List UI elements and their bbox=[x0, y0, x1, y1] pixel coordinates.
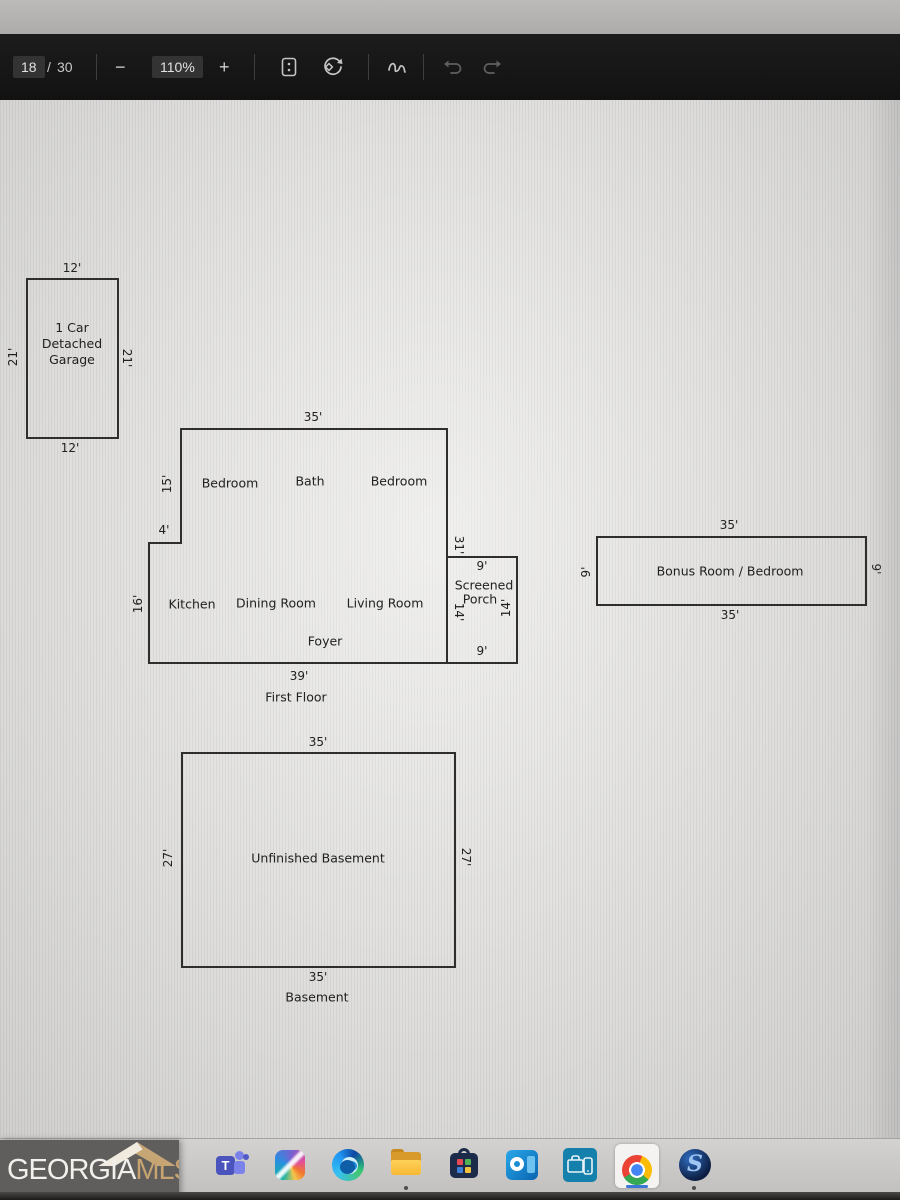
toolbar-divider bbox=[423, 54, 424, 80]
file-explorer-running-dot bbox=[404, 1186, 408, 1190]
draw-icon[interactable] bbox=[387, 58, 407, 76]
first-floor-dim-top: 35' bbox=[304, 410, 323, 424]
zoom-level-input[interactable]: 110% bbox=[152, 56, 203, 78]
screen-bottom-edge bbox=[0, 1192, 900, 1200]
fit-to-page-icon[interactable] bbox=[281, 57, 297, 77]
basement-dim-right: 27' bbox=[459, 848, 473, 867]
toolbar-divider bbox=[96, 54, 97, 80]
toolbar-divider bbox=[254, 54, 255, 80]
chrome-icon[interactable] bbox=[615, 1148, 649, 1182]
garage-dim-bottom: 12' bbox=[61, 441, 80, 455]
porch-dim-left: 14' bbox=[452, 603, 466, 622]
page-right-shade bbox=[866, 100, 900, 1138]
copilot-icon[interactable] bbox=[273, 1148, 307, 1182]
supra-running-dot bbox=[692, 1186, 696, 1190]
kitchen-label: Kitchen bbox=[169, 597, 216, 612]
bonus-dim-top: 35' bbox=[720, 518, 739, 532]
porch-dim-top: 9' bbox=[477, 559, 488, 573]
basement-dim-top: 35' bbox=[309, 735, 328, 749]
first-floor-dim-step: 4' bbox=[159, 523, 170, 537]
basement-room-label: Unfinished Basement bbox=[251, 851, 385, 866]
foyer-label: Foyer bbox=[308, 634, 343, 649]
first-floor-dim-left-lower: 16' bbox=[131, 595, 145, 614]
georgia-mls-watermark: GEORGIAMLS REAL ESTATE SERVICES bbox=[0, 1140, 179, 1200]
garage-dim-left: 21' bbox=[6, 348, 20, 367]
edge-icon[interactable] bbox=[331, 1148, 365, 1182]
pdf-viewer-toolbar: 18 / 30 − 110% + bbox=[0, 34, 900, 100]
porch-dim-bottom: 9' bbox=[477, 644, 488, 658]
teams-icon[interactable]: T bbox=[215, 1148, 249, 1182]
porch-label-line2: Porch bbox=[463, 592, 497, 607]
pdf-page-canvas[interactable]: 12' 1 Car Detached Garage 12' 21' 21' 35… bbox=[0, 100, 900, 1138]
first-floor-caption: First Floor bbox=[265, 690, 326, 705]
page-separator: / bbox=[47, 59, 51, 75]
rotate-icon[interactable] bbox=[322, 56, 344, 78]
file-explorer-icon[interactable] bbox=[389, 1148, 423, 1182]
bath-label: Bath bbox=[295, 474, 324, 489]
first-floor-dim-right: 31' bbox=[452, 536, 466, 555]
zoom-out-button[interactable]: − bbox=[115, 58, 126, 76]
first-floor-dim-left-upper: 15' bbox=[160, 475, 174, 494]
garage-dim-top: 12' bbox=[63, 261, 82, 275]
undo-icon[interactable] bbox=[443, 59, 463, 75]
page-number-input[interactable]: 18 bbox=[13, 56, 45, 78]
chrome-active-indicator bbox=[626, 1185, 648, 1188]
porch-dim-right: 14' bbox=[499, 599, 513, 618]
bedroom-right-label: Bedroom bbox=[371, 474, 428, 489]
basement-dim-bottom: 35' bbox=[309, 970, 328, 984]
brand-text: GEORGIAMLS bbox=[7, 1154, 179, 1187]
bonus-room-label: Bonus Room / Bedroom bbox=[657, 564, 804, 579]
garage-room-label: 1 Car Detached Garage bbox=[42, 320, 102, 368]
bedroom-left-label: Bedroom bbox=[202, 476, 259, 491]
supra-icon[interactable]: S bbox=[678, 1148, 712, 1182]
bonus-dim-bottom: 35' bbox=[721, 608, 740, 622]
microsoft-store-icon[interactable] bbox=[447, 1148, 481, 1182]
basement-caption: Basement bbox=[285, 990, 348, 1005]
bonus-dim-left: 9' bbox=[579, 567, 593, 578]
dining-room-label: Dining Room bbox=[236, 596, 316, 611]
floor-plan-outlines bbox=[0, 100, 900, 1138]
redo-icon[interactable] bbox=[482, 59, 502, 75]
page-total: 30 bbox=[57, 59, 73, 75]
toolbar-divider bbox=[368, 54, 369, 80]
living-room-label: Living Room bbox=[347, 596, 424, 611]
porch-label-line1: Screened bbox=[455, 578, 514, 593]
basement-dim-left: 27' bbox=[161, 849, 175, 868]
screen-top-strip bbox=[0, 0, 900, 34]
outlook-icon[interactable] bbox=[505, 1148, 539, 1182]
zoom-in-button[interactable]: + bbox=[219, 58, 230, 76]
company-portal-icon[interactable] bbox=[563, 1148, 597, 1182]
first-floor-dim-bottom: 39' bbox=[290, 669, 309, 683]
garage-dim-right: 21' bbox=[120, 349, 134, 368]
